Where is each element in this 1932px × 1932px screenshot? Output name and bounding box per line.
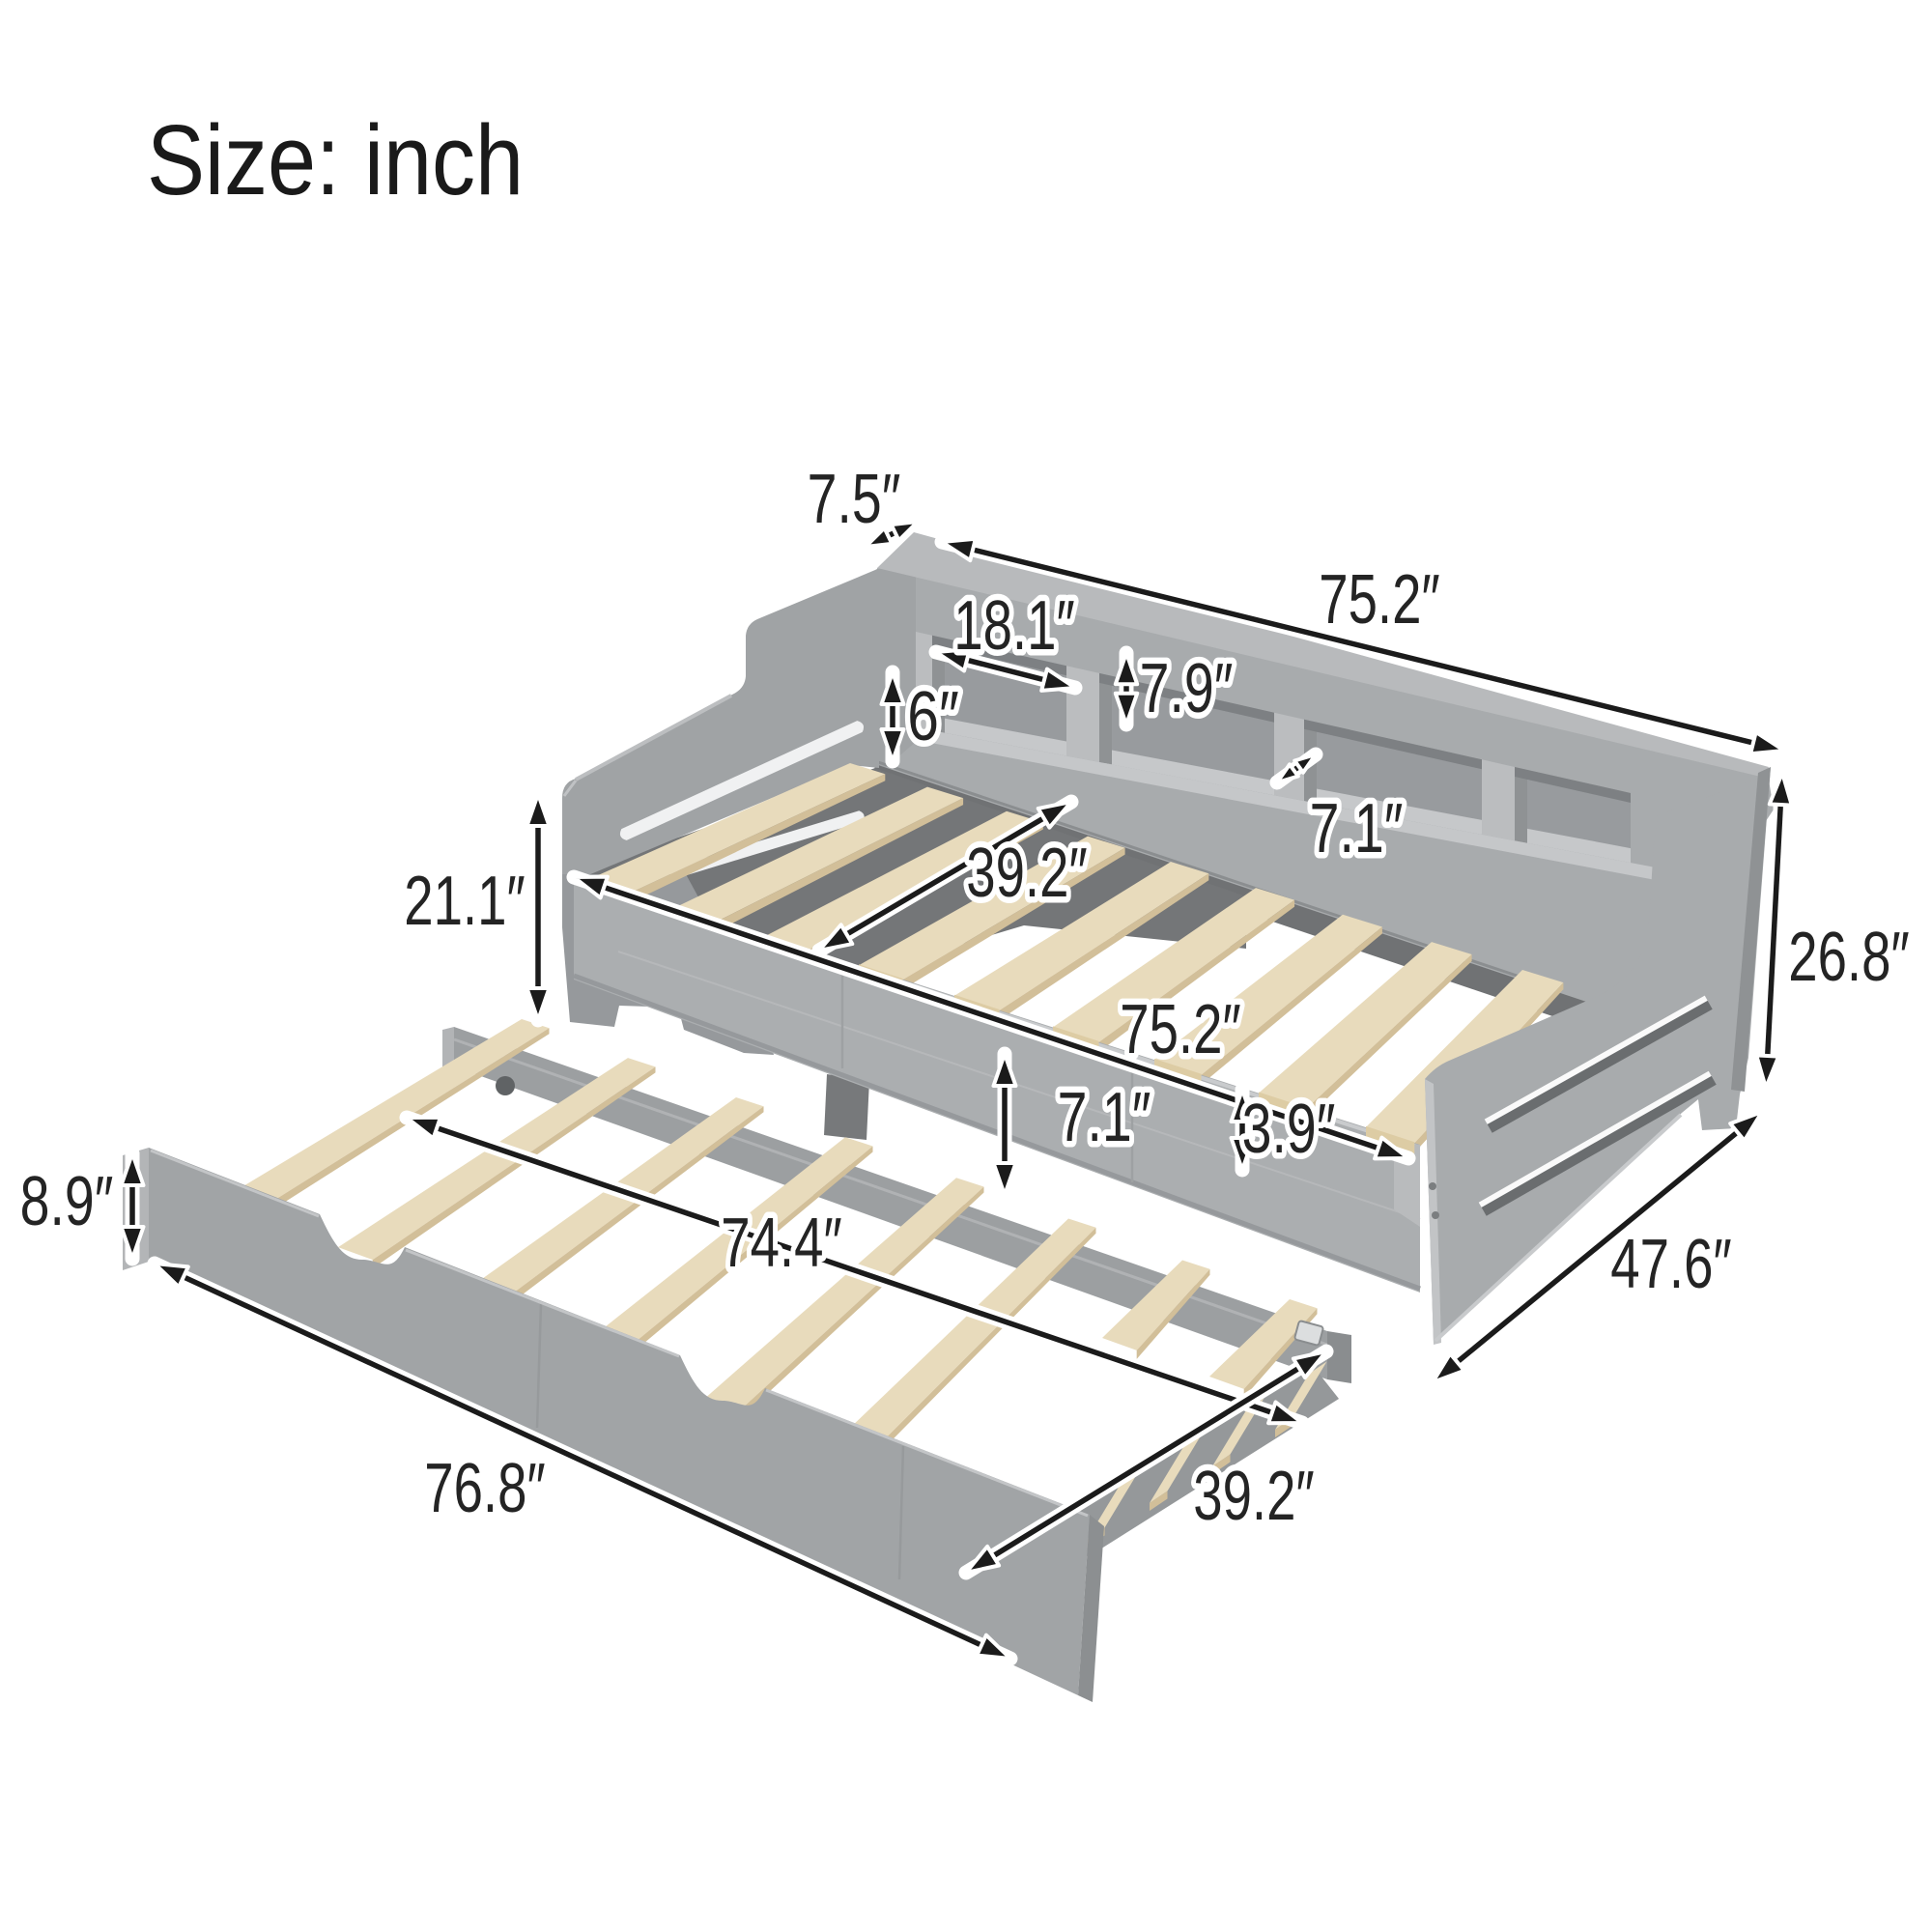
svg-text:8.9″: 8.9″ [20, 1163, 114, 1240]
svg-text:39.2″: 39.2″ [1193, 1458, 1315, 1535]
svg-text:7.1″: 7.1″ [1058, 1079, 1151, 1156]
svg-text:74.4″: 74.4″ [721, 1205, 842, 1282]
svg-text:18.1″: 18.1″ [953, 587, 1075, 665]
svg-text:21.1″: 21.1″ [404, 863, 526, 940]
svg-text:75.2″: 75.2″ [1120, 991, 1241, 1068]
svg-text:3.9″: 3.9″ [1242, 1091, 1336, 1168]
svg-text:47.6″: 47.6″ [1610, 1226, 1732, 1303]
svg-text:Size: inch: Size: inch [147, 104, 524, 215]
svg-text:7.1″: 7.1″ [1310, 790, 1404, 867]
svg-text:7.9″: 7.9″ [1140, 650, 1234, 727]
svg-text:7.5″: 7.5″ [808, 461, 901, 538]
svg-text:6″: 6″ [907, 678, 959, 755]
svg-text:76.8″: 76.8″ [424, 1450, 546, 1527]
svg-text:39.2″: 39.2″ [966, 835, 1088, 912]
svg-text:75.2″: 75.2″ [1319, 561, 1440, 639]
svg-text:26.8″: 26.8″ [1788, 919, 1910, 996]
